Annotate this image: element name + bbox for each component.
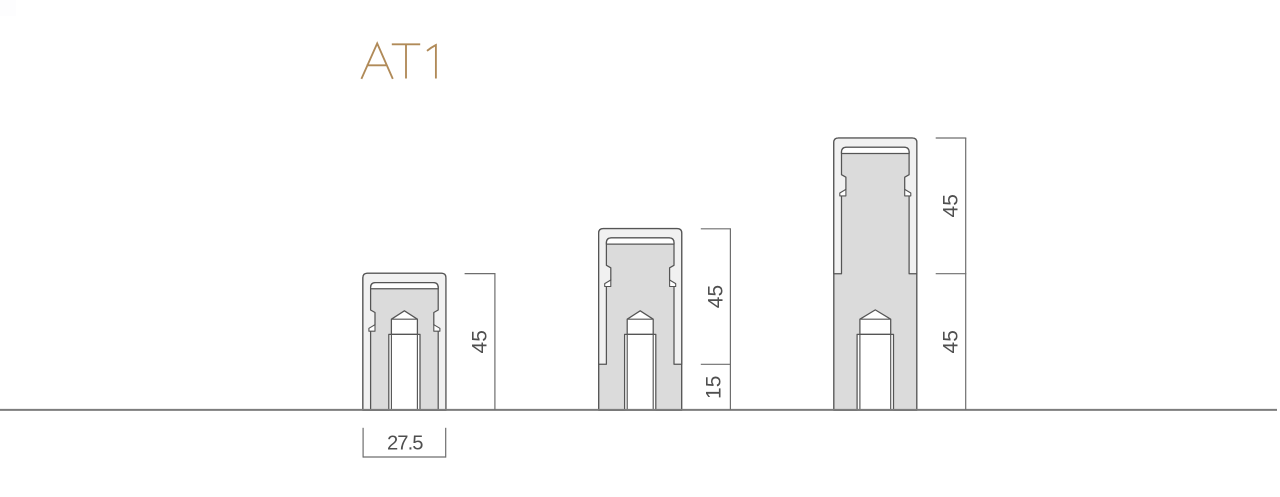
svg-text:45: 45 [704,285,727,308]
svg-text:45: 45 [468,330,491,353]
svg-text:45: 45 [939,330,962,353]
svg-text:15: 15 [703,376,726,399]
svg-text:45: 45 [939,194,962,217]
svg-text:27.5: 27.5 [387,433,423,455]
